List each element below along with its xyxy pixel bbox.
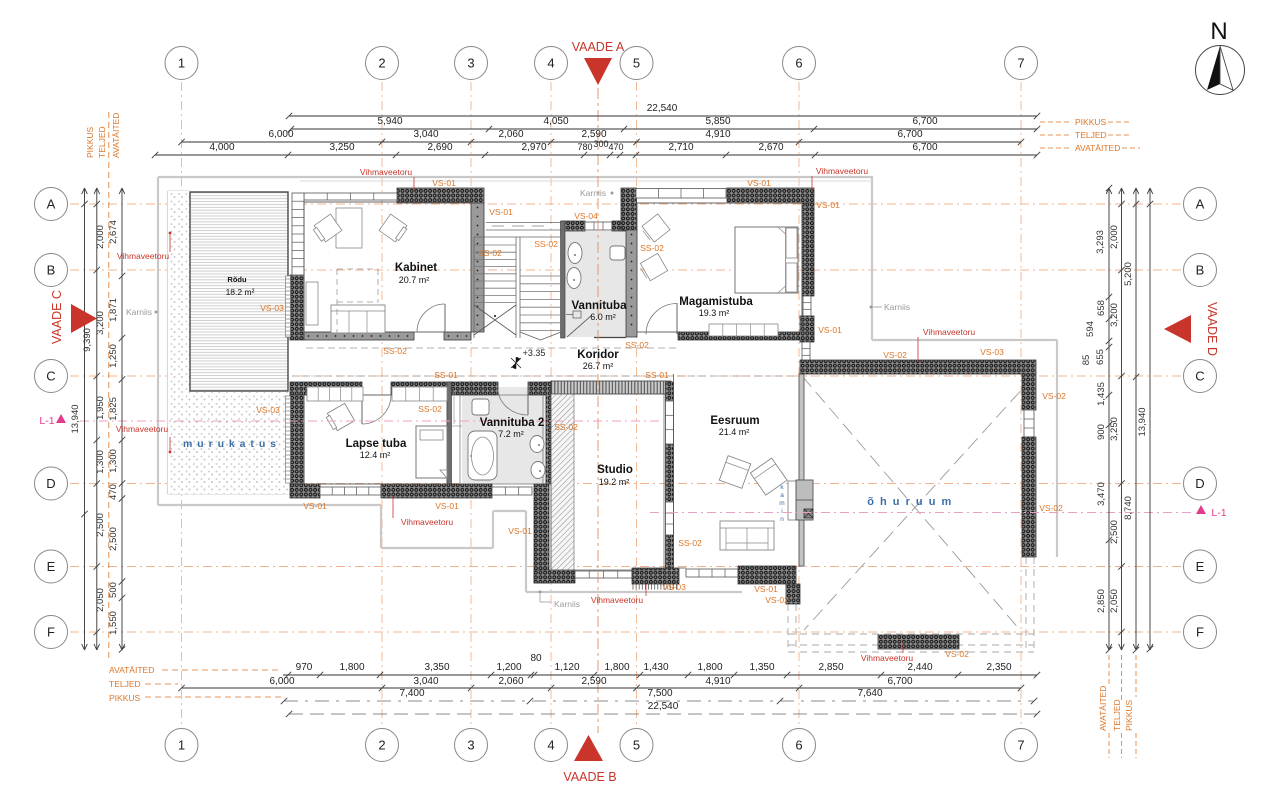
svg-text:1,120: 1,120 [554, 662, 579, 673]
svg-text:22,540: 22,540 [647, 103, 678, 114]
svg-text:N: N [1210, 18, 1227, 45]
svg-text:5,850: 5,850 [705, 116, 730, 127]
svg-text:3,250: 3,250 [329, 142, 354, 153]
svg-text:VAADE C: VAADE C [50, 290, 64, 344]
svg-text:1,350: 1,350 [749, 662, 774, 673]
svg-text:1,250: 1,250 [108, 344, 119, 368]
svg-text:VS-01: VS-01 [818, 325, 842, 335]
svg-text:2,850: 2,850 [818, 662, 843, 673]
svg-text:4: 4 [547, 56, 554, 71]
svg-text:PIKKUS: PIKKUS [1075, 117, 1107, 127]
svg-text:Vannituba: Vannituba [572, 300, 628, 312]
svg-text:VS-03: VS-03 [260, 303, 284, 313]
svg-text:SS-02: SS-02 [383, 346, 407, 356]
svg-text:21.4 m²: 21.4 m² [719, 427, 750, 437]
svg-text:VS-01: VS-01 [747, 178, 771, 188]
svg-text:B: B [47, 263, 56, 278]
svg-text:C: C [46, 369, 55, 384]
svg-text:19.2 m²: 19.2 m² [599, 477, 630, 487]
svg-text:F: F [1196, 625, 1204, 640]
svg-text:AVATÄITED: AVATÄITED [111, 113, 121, 158]
svg-text:1,200: 1,200 [496, 662, 521, 673]
svg-text:E: E [47, 559, 56, 574]
svg-text:2,500: 2,500 [95, 513, 106, 537]
svg-text:7: 7 [1017, 56, 1024, 71]
svg-text:12.4 m²: 12.4 m² [360, 450, 391, 460]
svg-text:85: 85 [1081, 355, 1092, 366]
svg-text:4: 4 [547, 738, 554, 753]
svg-text:i: i [781, 508, 782, 515]
svg-text:2,000: 2,000 [1109, 225, 1120, 249]
svg-text:300: 300 [593, 139, 608, 149]
svg-text:VS-03: VS-03 [662, 582, 686, 592]
svg-text:6,700: 6,700 [897, 129, 922, 140]
svg-text:VAADE B: VAADE B [563, 770, 616, 784]
svg-text:Kabinet: Kabinet [395, 262, 437, 274]
svg-text:6,700: 6,700 [887, 676, 912, 687]
svg-text:2,500: 2,500 [108, 527, 119, 551]
svg-text:C: C [1195, 369, 1204, 384]
svg-text:PIKKUS: PIKKUS [85, 126, 95, 158]
svg-text:Lapse tuba: Lapse tuba [346, 438, 407, 450]
svg-text:7,400: 7,400 [399, 688, 424, 699]
svg-text:780: 780 [577, 142, 592, 152]
svg-text:3,200: 3,200 [1109, 303, 1120, 327]
svg-text:655: 655 [1095, 349, 1106, 365]
svg-text:18.2 m²: 18.2 m² [226, 287, 255, 297]
svg-text:2,674: 2,674 [108, 220, 119, 244]
svg-text:3,200: 3,200 [95, 311, 106, 335]
svg-text:2: 2 [378, 738, 385, 753]
svg-text:SS-02: SS-02 [478, 248, 502, 258]
svg-text:970: 970 [296, 662, 313, 673]
svg-text:Karniis: Karniis [884, 302, 910, 312]
svg-text:3: 3 [467, 738, 474, 753]
svg-text:VS-02: VS-02 [765, 595, 789, 605]
svg-text:1,800: 1,800 [339, 662, 364, 673]
svg-text:3,470: 3,470 [1096, 482, 1107, 506]
svg-text:2,000: 2,000 [95, 225, 106, 249]
svg-text:26.7 m²: 26.7 m² [583, 361, 614, 371]
svg-text:VS-01: VS-01 [508, 526, 532, 536]
svg-text:6: 6 [795, 56, 802, 71]
svg-text:PIKKUS: PIKKUS [109, 693, 141, 703]
svg-text:Vihmaveetoru: Vihmaveetoru [861, 653, 914, 663]
svg-text:TELJED: TELJED [109, 679, 141, 689]
svg-text:Vannituba 2: Vannituba 2 [480, 417, 545, 429]
svg-text:13,940: 13,940 [1137, 407, 1148, 436]
svg-text:2,690: 2,690 [427, 142, 452, 153]
svg-text:PIKKUS: PIKKUS [1124, 699, 1134, 731]
svg-text:Vihmaveetoru: Vihmaveetoru [923, 327, 976, 337]
svg-text:VS-01: VS-01 [754, 584, 778, 594]
svg-text:D: D [46, 476, 55, 491]
svg-text:AVATÄITED: AVATÄITED [1098, 686, 1108, 731]
svg-text:TELJED: TELJED [1112, 699, 1122, 731]
svg-text:Rõdu: Rõdu [227, 275, 247, 284]
svg-text:SS-02: SS-02 [678, 538, 702, 548]
svg-text:5: 5 [633, 738, 640, 753]
svg-text:13,940: 13,940 [70, 404, 81, 433]
svg-text:2,500: 2,500 [1109, 520, 1120, 544]
svg-text:3: 3 [467, 56, 474, 71]
svg-text:4,910: 4,910 [705, 676, 730, 687]
svg-text:1,950: 1,950 [95, 396, 106, 420]
svg-text:L-1: L-1 [1211, 507, 1226, 519]
svg-text:VS-03: VS-03 [256, 405, 280, 415]
svg-text:594: 594 [1085, 321, 1096, 337]
svg-text:5: 5 [633, 56, 640, 71]
svg-text:D: D [1195, 476, 1204, 491]
svg-text:Karniis: Karniis [126, 307, 152, 317]
svg-text:VS-01: VS-01 [435, 501, 459, 511]
svg-text:1: 1 [178, 56, 185, 71]
svg-text:VS-02: VS-02 [883, 350, 907, 360]
svg-text:4,000: 4,000 [209, 142, 234, 153]
svg-text:1,871: 1,871 [108, 298, 119, 322]
svg-text:Vihmaveetoru: Vihmaveetoru [401, 517, 454, 527]
svg-text:SS-02: SS-02 [534, 239, 558, 249]
svg-text:1,300: 1,300 [95, 450, 106, 474]
svg-text:2,590: 2,590 [581, 676, 606, 687]
svg-text:õ h u r u u m: õ h u r u u m [867, 496, 953, 508]
svg-text:4,050: 4,050 [543, 116, 568, 127]
svg-text:SS-01: SS-01 [645, 370, 669, 380]
svg-text:1,550: 1,550 [108, 611, 119, 635]
svg-text:2,050: 2,050 [1109, 589, 1120, 613]
svg-text:658: 658 [1096, 300, 1107, 316]
svg-text:Karniis: Karniis [554, 599, 580, 609]
svg-text:VAADE A: VAADE A [572, 40, 625, 54]
svg-text:2,350: 2,350 [986, 662, 1011, 673]
svg-text:Vihmaveetoru: Vihmaveetoru [360, 167, 413, 177]
svg-text:VAADE D: VAADE D [1205, 302, 1219, 356]
svg-text:3,040: 3,040 [413, 129, 438, 140]
svg-text:2: 2 [378, 56, 385, 71]
svg-text:2,060: 2,060 [498, 676, 523, 687]
svg-text:VS-04: VS-04 [574, 211, 598, 221]
svg-text:B: B [1196, 263, 1205, 278]
svg-text:500: 500 [108, 582, 119, 598]
svg-text:470: 470 [108, 484, 119, 500]
svg-text:2,440: 2,440 [907, 662, 932, 673]
svg-text:Koridor: Koridor [577, 349, 619, 361]
svg-text:VS-02: VS-02 [1042, 391, 1066, 401]
svg-text:5,200: 5,200 [1123, 262, 1134, 286]
svg-text:VS-01: VS-01 [303, 501, 327, 511]
svg-text:80: 80 [530, 653, 542, 664]
svg-text:7.2 m²: 7.2 m² [498, 429, 524, 439]
svg-text:n: n [780, 516, 784, 523]
svg-text:SS-02: SS-02 [418, 404, 442, 414]
svg-text:Vihmaveetoru: Vihmaveetoru [116, 424, 169, 434]
svg-text:Studio: Studio [597, 464, 633, 476]
svg-text:4,910: 4,910 [705, 129, 730, 140]
svg-text:8,740: 8,740 [1123, 496, 1134, 520]
svg-text:900: 900 [1096, 424, 1107, 440]
svg-text:3,040: 3,040 [413, 676, 438, 687]
svg-text:7,640: 7,640 [857, 688, 882, 699]
svg-text:m: m [779, 500, 784, 507]
svg-text:9,390: 9,390 [82, 328, 93, 352]
svg-text:22,540: 22,540 [648, 701, 679, 712]
svg-text:Eesruum: Eesruum [710, 415, 759, 427]
svg-text:3,250: 3,250 [1109, 417, 1120, 441]
svg-text:6,000: 6,000 [268, 129, 293, 140]
svg-text:E: E [1196, 559, 1205, 574]
svg-text:VS-01: VS-01 [489, 207, 513, 217]
svg-text:2,050: 2,050 [95, 588, 106, 612]
svg-text:SS-02: SS-02 [640, 243, 664, 253]
svg-text:6: 6 [795, 738, 802, 753]
svg-text:VS-01: VS-01 [816, 200, 840, 210]
svg-text:VS-02: VS-02 [1039, 503, 1063, 513]
svg-text:VS-03: VS-03 [980, 347, 1004, 357]
svg-text:VS-02: VS-02 [945, 649, 969, 659]
svg-text:Vihmaveetoru: Vihmaveetoru [816, 166, 869, 176]
svg-text:2,970: 2,970 [521, 142, 546, 153]
svg-text:1,430: 1,430 [643, 662, 668, 673]
svg-text:5,940: 5,940 [377, 116, 402, 127]
svg-text:Magamistuba: Magamistuba [679, 296, 753, 308]
svg-text:AVATÄITED: AVATÄITED [1075, 143, 1120, 153]
svg-text:Vihmaveetoru: Vihmaveetoru [117, 251, 170, 261]
svg-text:A: A [1196, 197, 1205, 212]
svg-text:3,293: 3,293 [1095, 230, 1106, 254]
svg-text:20.7 m²: 20.7 m² [399, 275, 430, 285]
svg-text:VS-01: VS-01 [432, 178, 456, 188]
svg-text:470: 470 [608, 142, 623, 152]
svg-text:3,350: 3,350 [424, 662, 449, 673]
svg-text:1,800: 1,800 [697, 662, 722, 673]
svg-text:F: F [47, 625, 55, 640]
svg-text:TELJED: TELJED [97, 126, 107, 158]
svg-text:19.3 m²: 19.3 m² [699, 308, 730, 318]
svg-text:1,825: 1,825 [108, 397, 119, 421]
svg-text:SS-01: SS-01 [434, 370, 458, 380]
svg-text:6,700: 6,700 [912, 142, 937, 153]
svg-text:AVATÄITED: AVATÄITED [109, 665, 154, 675]
svg-text:7: 7 [1017, 738, 1024, 753]
svg-text:6,700: 6,700 [912, 116, 937, 127]
svg-text:Karniis: Karniis [580, 188, 606, 198]
svg-text:2,710: 2,710 [668, 142, 693, 153]
svg-text:2,060: 2,060 [498, 129, 523, 140]
svg-text:6,000: 6,000 [269, 676, 294, 687]
svg-text:TELJED: TELJED [1075, 130, 1107, 140]
svg-text:SS-02: SS-02 [625, 340, 649, 350]
svg-text:1,300: 1,300 [108, 449, 119, 473]
svg-text:1,800: 1,800 [604, 662, 629, 673]
svg-text:7,500: 7,500 [647, 688, 672, 699]
svg-text:Vihmaveetoru: Vihmaveetoru [591, 595, 644, 605]
svg-text:1,435: 1,435 [1096, 382, 1107, 406]
svg-text:6.0 m²: 6.0 m² [590, 312, 616, 322]
svg-text:2,670: 2,670 [758, 142, 783, 153]
svg-text:2,850: 2,850 [1096, 589, 1107, 613]
svg-text:SS-02: SS-02 [554, 422, 578, 432]
svg-text:+3.35: +3.35 [523, 348, 546, 358]
svg-text:L-1: L-1 [39, 415, 54, 427]
svg-text:m u r u k a t u s: m u r u k a t u s [183, 438, 277, 450]
svg-text:1: 1 [178, 738, 185, 753]
svg-text:A: A [47, 197, 56, 212]
svg-text:a: a [780, 492, 784, 499]
